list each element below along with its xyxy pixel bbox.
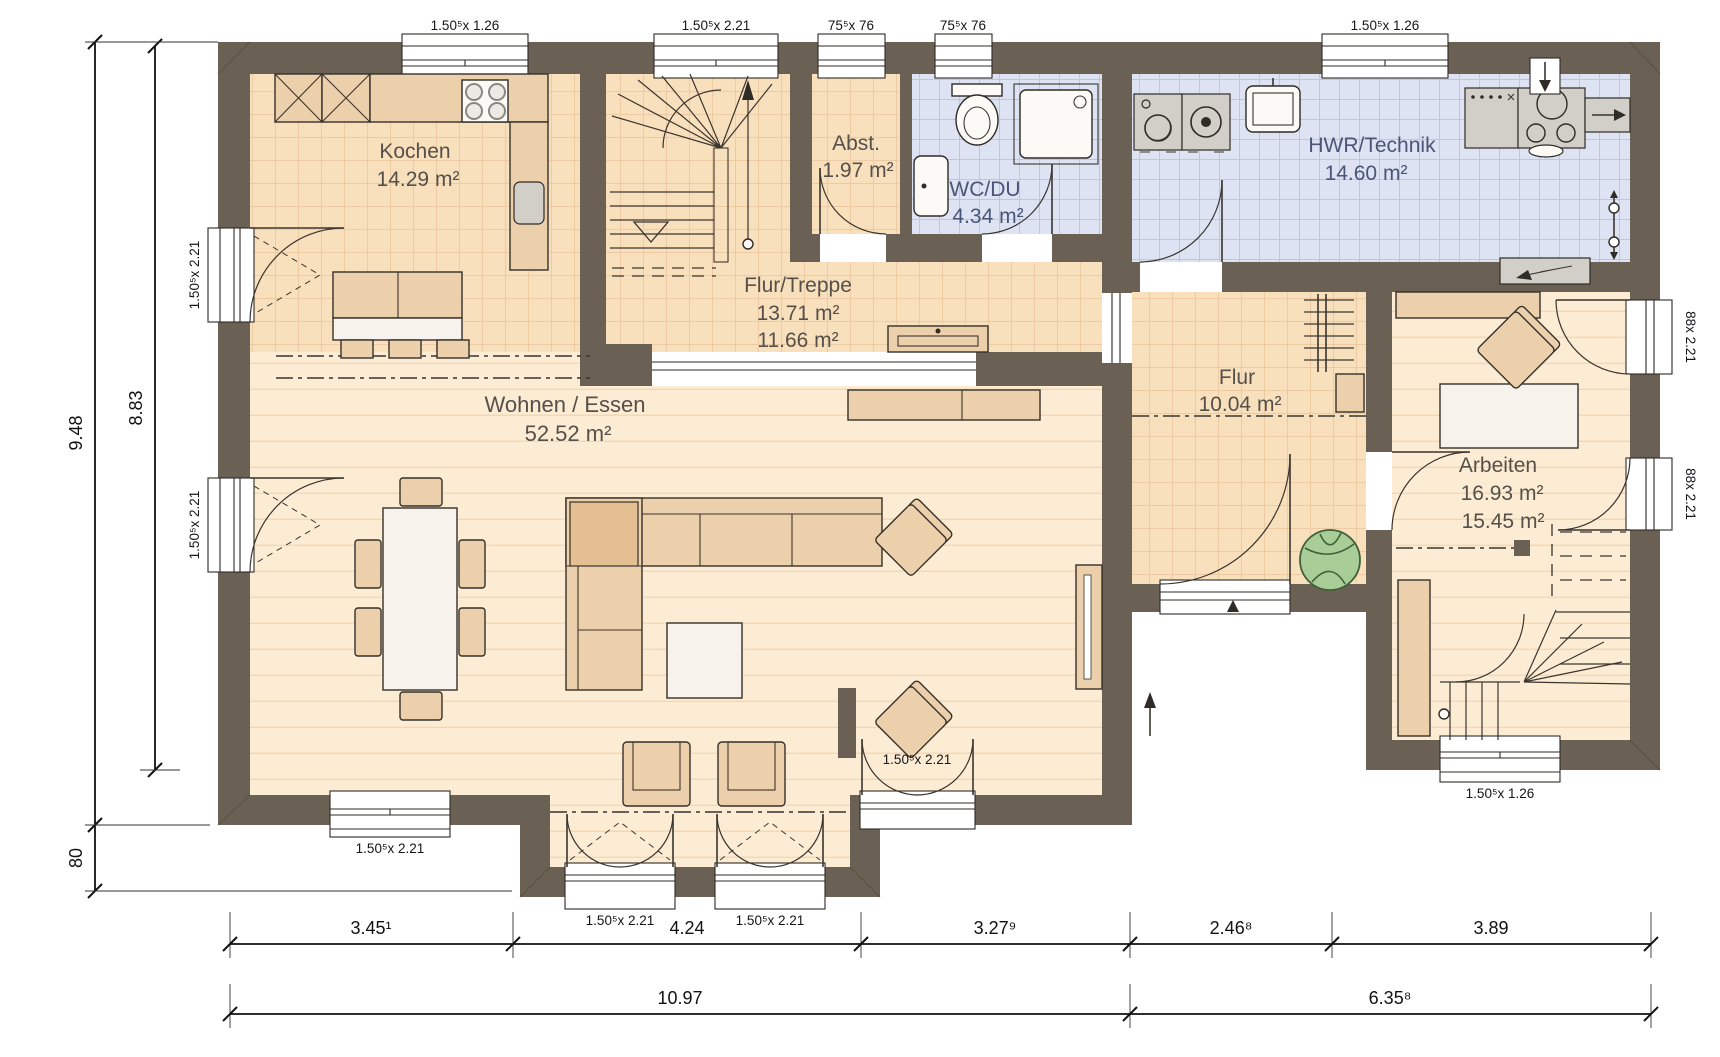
dryer-icon — [1182, 94, 1230, 150]
abst-wc-wall — [900, 74, 912, 234]
wall-mid — [1102, 42, 1132, 825]
window-label: 1.50⁵x 2.21 — [356, 841, 425, 856]
dim-vertical-bay: 80 — [66, 848, 86, 868]
flur-area: 10.04 m² — [1199, 393, 1282, 416]
knee-wall-mark — [1514, 540, 1530, 556]
coffee-table — [667, 623, 742, 698]
window-label: 1.50⁵x 2.21 — [682, 18, 751, 33]
divider-east — [976, 352, 1102, 386]
flur-treppe-area-1: 13.71 m² — [757, 302, 840, 325]
opening-hall-flur — [1102, 293, 1132, 363]
divider-glass-opening — [652, 352, 976, 386]
entry-arrow-icon — [1144, 692, 1156, 736]
washbasin-icon — [914, 156, 948, 216]
ventilation-outlet-icon — [1585, 98, 1630, 132]
dim-segment: 2.46⁸ — [1210, 918, 1253, 938]
hall-cabinet — [1336, 374, 1364, 412]
dim-vertical-main: 8.83 — [126, 390, 146, 425]
window-label: 1.50⁵x 1.26 — [1351, 18, 1420, 33]
kitchen-right-wall — [580, 74, 606, 386]
kochen-area: 14.29 m² — [377, 168, 460, 191]
armchair-icon — [623, 742, 690, 806]
window-label: 1.50⁵x 2.21 — [883, 752, 952, 767]
stool-icon — [437, 340, 469, 358]
window-top-stairs — [654, 34, 778, 78]
wohnen-label: Wohnen / Essen — [484, 392, 645, 417]
window-top-wc — [935, 34, 992, 78]
window-top-kitchen — [402, 34, 528, 78]
window-label: 88x 2.21 — [1683, 311, 1698, 363]
abst-label: Abst. — [832, 132, 880, 155]
kitchen-counter-top — [370, 74, 548, 122]
dim-segment: 4.24 — [669, 918, 704, 938]
window-label: 1.50⁵x 2.21 — [187, 241, 202, 310]
floor-plan-page: Kochen 14.29 m² Abst. 1.97 m² WC/DU 4.34… — [0, 0, 1720, 1057]
dim-total-left: 10.97 — [657, 988, 702, 1008]
window-label: 75⁵x 76 — [828, 18, 874, 33]
dishwasher-icon — [514, 182, 544, 224]
dim-segment: 3.45¹ — [350, 918, 391, 938]
electric-panel-icon — [1500, 258, 1590, 284]
heat-pump-icon — [1518, 88, 1585, 157]
washing-machine-icon — [1134, 94, 1182, 150]
stove-icon — [462, 80, 508, 122]
dim-row2: 10.97 6.35⁸ — [223, 984, 1658, 1028]
window-label: 1.50⁵x 1.26 — [1466, 786, 1535, 801]
arbeiten-label: Arbeiten — [1459, 454, 1537, 477]
dim-segment: 3.27⁹ — [974, 918, 1017, 938]
hwr-label: HWR/Technik — [1308, 134, 1436, 157]
floor-plan-drawing: Kochen 14.29 m² Abst. 1.97 m² WC/DU 4.34… — [0, 0, 1720, 1057]
window-label: 1.50⁵x 2.21 — [187, 491, 202, 560]
chair-icon — [459, 540, 485, 588]
dim-vertical-total: 9.48 — [66, 415, 86, 450]
desk — [1440, 384, 1578, 448]
divider-stub — [590, 344, 652, 386]
wc-label: WC/DU — [949, 178, 1020, 201]
window-label: 75⁵x 76 — [940, 18, 986, 33]
hwr-area: 14.60 m² — [1325, 162, 1408, 185]
window-bottom-living — [330, 791, 450, 837]
kochen-label: Kochen — [379, 140, 450, 163]
window-label: 1.50⁵x 1.26 — [431, 18, 500, 33]
window-label: 1.50⁵x 2.21 — [586, 913, 655, 928]
utility-sink-icon — [1246, 78, 1300, 132]
armchair-icon — [718, 742, 785, 806]
chair-icon — [400, 692, 442, 720]
wall-stub — [838, 688, 856, 758]
flur-treppe-label: Flur/Treppe — [744, 274, 852, 297]
chair-icon — [459, 608, 485, 656]
window-top-hwr — [1322, 34, 1448, 78]
tv-board-east — [1076, 565, 1102, 689]
arbeiten-area-1: 16.93 m² — [1461, 482, 1544, 505]
shower-icon — [1014, 84, 1098, 164]
window-bottom-stairs — [1440, 736, 1560, 782]
dim-total-right: 6.35⁸ — [1369, 988, 1412, 1008]
chair-icon — [355, 540, 381, 588]
window-label: 1.50⁵x 2.21 — [736, 913, 805, 928]
stair-abst-wall — [790, 74, 812, 262]
boiler-icon — [1465, 88, 1518, 148]
dining-table — [383, 508, 457, 690]
wc-area: 4.34 m² — [952, 205, 1023, 228]
dim-row1: 3.45¹ 4.24 3.27⁹ 2.46⁸ 3.89 — [223, 912, 1658, 958]
flur-treppe-area-2: 11.66 m² — [757, 329, 838, 352]
sideboard — [888, 326, 988, 352]
window-top-abst — [818, 34, 885, 78]
flur-label: Flur — [1219, 366, 1255, 389]
bay-floor — [550, 795, 850, 867]
wall-left — [218, 42, 250, 825]
chair-icon — [400, 478, 442, 506]
wall-right — [1630, 42, 1660, 770]
kitchen-island — [333, 272, 469, 358]
stool-icon — [341, 340, 373, 358]
wohnen-area: 52.52 m² — [525, 421, 612, 446]
abst-area: 1.97 m² — [822, 159, 893, 182]
window-label: 88x 2.21 — [1683, 468, 1698, 520]
dim-segment: 3.89 — [1473, 918, 1508, 938]
chair-icon — [355, 608, 381, 656]
stool-icon — [389, 340, 421, 358]
plant-icon — [1300, 530, 1360, 590]
wardrobe — [1398, 580, 1430, 736]
arbeiten-area-2: 15.45 m² — [1462, 510, 1545, 533]
ventilation-inlet-icon — [1530, 58, 1560, 94]
tv-lowboard — [848, 390, 1040, 420]
